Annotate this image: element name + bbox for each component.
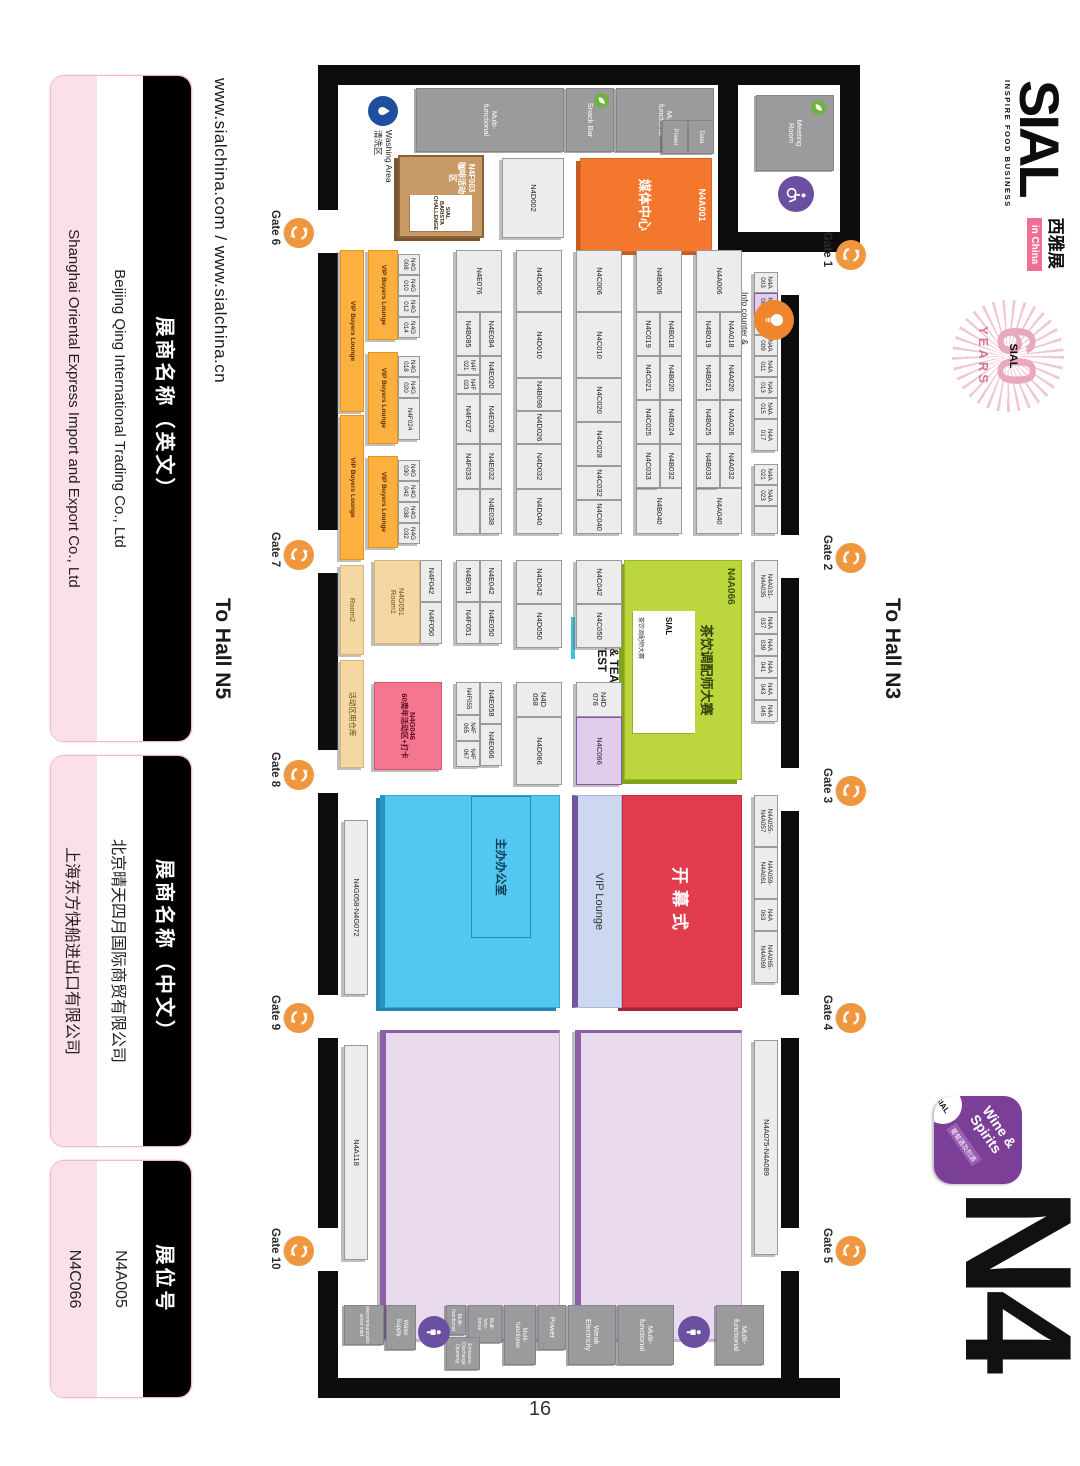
booth-N4A065--N4A069: N4A065- N4A069: [754, 931, 778, 983]
rotated-canvas: SIAL INSPIRE FOOD BUSINESS 西雅展 in China …: [0, 0, 1080, 1466]
coffee-activity-booth: N4F003咖啡活动区 SIAL BARISTA CHALLENGE: [398, 155, 484, 238]
booth-N4A-063: N4A 063: [754, 899, 778, 931]
exhibitor-card-chinese-row1: 北京晴天四月国际商贸有限公司: [97, 756, 143, 1146]
gate-icon-gate-1: [836, 240, 866, 270]
gate-icon-gate-2: [836, 543, 866, 573]
opening-ceremony-label: 开幕式: [670, 867, 695, 936]
booth-N4C021: N4C021: [636, 356, 660, 400]
gate-icon-gate-4: [836, 1003, 866, 1033]
booth-N4C033: N4C033: [636, 444, 660, 488]
booth-number-card-row2: N4C066: [51, 1161, 97, 1397]
booth-N4A-021: N4A 021: [754, 464, 778, 485]
booth-Multi--functional: Multi- functional: [416, 88, 564, 152]
booth-N4A-037: N4A 037: [754, 612, 778, 634]
booth-N4B020: N4B020: [660, 356, 682, 400]
booth-N4B032: N4B032: [660, 444, 682, 488]
wine-spirits-badge: Wine & Spirits 葡萄酒及烈酒 SIAL: [934, 1096, 1022, 1184]
booth-N4C019: N4C019: [636, 312, 660, 356]
gate-icon-gate-10: [284, 1236, 314, 1266]
booth-N4B019: N4B019: [696, 312, 720, 356]
booth-Multi--functional: Multi- functional: [618, 1305, 674, 1365]
booth-N4A-045: N4A 045: [754, 700, 778, 722]
booth-N4C028: N4C028: [576, 422, 622, 466]
booth-empty: [575, 1030, 742, 1340]
wall-segment: [840, 65, 860, 252]
sial-logo-chinese: 西雅展: [1046, 218, 1064, 271]
sixty-years-sial: SIAL: [1007, 343, 1019, 368]
gate-label-gate-9: Gate 9: [269, 995, 281, 1030]
booth-N4G058-N4G072: N4G058-N4G072: [344, 820, 368, 995]
media-center-booth: N4A001 媒体中心: [580, 158, 712, 252]
booth-Water-Supply: Water Supply: [386, 1305, 416, 1350]
booth-N4F051: N4F051: [456, 602, 480, 644]
gate-label-gate-4: Gate 4: [821, 995, 833, 1030]
coffee-activity-label: 咖啡活动区: [448, 162, 467, 194]
tea-contest-chip-brand: SIAL: [664, 617, 673, 727]
booth-N4E058: N4E058: [480, 682, 502, 724]
booth-N4G-018: N4G 018: [398, 356, 420, 377]
exhibitor-card-english: 展商名称（英文） Beijing Qing International Trad…: [50, 75, 192, 742]
media-center-id: N4A001: [697, 159, 707, 251]
booth-N4A018: N4A018: [720, 312, 742, 356]
wall-segment: [318, 573, 338, 750]
booth-N4D026: N4D026: [516, 411, 562, 444]
booth-N4C006: N4C006: [576, 250, 622, 312]
booth-N4B021: N4B021: [696, 356, 720, 400]
tea-contest-area: N4A066 茶饮调配师大赛 SIAL 茶饮调配师大赛 CHIC & TEA C…: [624, 560, 742, 780]
booth-N4F-023: N4F 023: [456, 375, 480, 394]
booth-N4C032: N4C032: [576, 466, 622, 500]
page-number: 16: [0, 1398, 1080, 1421]
booth-N4F-067: N4F 067: [456, 741, 480, 767]
exhibitor-card-chinese: 展商名称（中文） 北京晴天四月国际商贸有限公司 上海东方快船进出口有限公司: [50, 755, 192, 1147]
gate-label-gate-10: Gate 10: [269, 1228, 281, 1270]
booth-N4D040: N4D040: [516, 489, 562, 534]
booth-N4A-043: N4A 043: [754, 678, 778, 700]
tea-contest-id: N4A066: [725, 568, 736, 605]
booth-Data: Data: [688, 120, 714, 154]
gate-icon-gate-6: [284, 218, 314, 248]
booth-N4G046-60周年活动区+打卡: N4G046 60周年活动区+打卡: [374, 682, 442, 770]
booth-N4B025: N4B025: [696, 400, 720, 444]
booth-N4E066: N4E066: [480, 724, 502, 766]
booth-N4A040: N4A040: [696, 488, 742, 534]
booth-N4D032: N4D032: [516, 444, 562, 489]
gate-label-gate-6: Gate 6: [269, 210, 281, 245]
booth-N4G-010: N4G 010: [398, 275, 420, 296]
exhibitor-card-english-row2: Shanghai Oriental Express Import and Exp…: [51, 76, 97, 741]
sial-logo: SIAL INSPIRE FOOD BUSINESS 西雅展 in China: [1003, 80, 1064, 271]
wall-segment: [718, 85, 738, 252]
gate-icon-gate-5: [836, 1236, 866, 1266]
booth-N4A-013: N4A 013: [754, 377, 778, 398]
to-hall-n3-label: To Hall N3: [880, 598, 904, 699]
wall-segment: [318, 65, 860, 85]
booth-N4C025: N4C025: [636, 400, 660, 444]
vip-lounge-strip: VIP Lounge: [572, 795, 622, 1008]
booth-N4E084: N4E084: [480, 312, 502, 356]
booth-N4A118: N4A118: [344, 1045, 368, 1260]
booth-活动区用仓库: 活动区用仓库: [340, 660, 364, 768]
restroom-icon-2: [418, 1316, 450, 1348]
booth-number-card-row1: N4A005: [97, 1161, 143, 1397]
booth-N4F033: N4F033: [456, 444, 480, 489]
sixty-years-label: YEARS: [976, 326, 991, 386]
booth-N4E076: N4E076: [456, 250, 502, 312]
booth-N4A-011: N4A 011: [754, 356, 778, 377]
booth-N4G051-Room1: N4G051 Room1: [374, 560, 420, 644]
booth-N4B085: N4B085: [456, 312, 480, 356]
booth-N4D-058: N4D 058: [516, 682, 562, 717]
booth-N4C040: N4C040: [576, 500, 622, 534]
sial-logo-word: SIAL: [1014, 80, 1064, 208]
booth-N4F-065: N4F 065: [456, 715, 480, 741]
booth-N4A059--N4A061: N4A059- N4A061: [754, 847, 778, 899]
exhibitor-card-english-header: 展商名称（英文）: [143, 76, 191, 741]
booth-N4E038: N4E038: [480, 489, 502, 534]
booth-number-card: 展位号 N4A005 N4C066: [50, 1160, 192, 1398]
booth-VIP-Buyers-Lounge: VIP Buyers Lounge: [340, 415, 364, 560]
washing-area-label: Washing Area 清洗区: [372, 130, 394, 183]
booth-N4C050: N4C050: [576, 604, 622, 648]
booth-N4D042: N4D042: [516, 560, 562, 604]
wall-segment: [318, 1271, 338, 1398]
booth-N4A006: N4A006: [696, 250, 742, 312]
booth-N4F024: N4F024: [398, 398, 420, 440]
booth-N4A026: N4A026: [720, 400, 742, 444]
booth-N4B018: N4B018: [660, 312, 682, 356]
gate-label-gate-5: Gate 5: [821, 1228, 833, 1263]
booth-N4G-012: N4G 012: [398, 296, 420, 317]
booth-Room2: Room2: [340, 565, 364, 655]
tea-contest-chip-underline: [571, 617, 575, 659]
wall-segment: [781, 811, 799, 995]
wall-segment: [318, 1378, 840, 1398]
gate-icon-gate-7: [284, 540, 314, 570]
booth-N4E032: N4E032: [480, 444, 502, 489]
booth-N4E020: N4E020: [480, 356, 502, 394]
booth-empty: [380, 1030, 560, 1340]
booth-VIP-Buyers-Lounge: VIP Buyers Lounge: [368, 250, 398, 340]
booth-Power: Power: [662, 120, 688, 154]
booth-VIP-Buyers-Lounge: VIP Buyers Lounge: [368, 456, 398, 548]
booth-N4C020: N4C020: [576, 378, 622, 422]
booth-empty: [456, 489, 480, 534]
booth-N4F042: N4F042: [420, 560, 442, 602]
opening-ceremony-area: 开幕式: [622, 795, 742, 1008]
wall-segment: [781, 578, 799, 768]
booth-Emission-Discharge-Opening: Emission Discharge Opening: [446, 1337, 480, 1370]
wall-segment: [318, 1038, 338, 1228]
booth-N4D050: N4D050: [516, 604, 562, 648]
booth-N4G-008: N4G 008: [398, 254, 420, 275]
gate-icon-gate-9: [284, 1003, 314, 1033]
booth-Power: Power: [538, 1305, 566, 1350]
booth-N4B024: N4B024: [660, 400, 682, 444]
booth-N4G-042: N4G 042: [398, 481, 420, 502]
booth-N4A031--N4A035: N4A031- N4A035: [754, 560, 778, 612]
wall-segment: [318, 793, 338, 995]
media-center-label: 媒体中心: [637, 179, 656, 231]
booth-N4C066: N4C066: [576, 717, 622, 785]
booth-N4A-003: N4A 003: [754, 272, 778, 293]
booth-VIP-Buyers-Lounge: VIP Buyers Lounge: [368, 352, 398, 444]
booth-N4B006: N4B006: [636, 250, 682, 312]
meeting-room-eco-icon: [811, 100, 826, 115]
gate-icon-gate-3: [836, 776, 866, 806]
snack-bar-eco-icon: [594, 93, 609, 108]
booth-Telecommunication-wires-inlet: Telecommunication wires inlet: [344, 1305, 384, 1345]
sial-logo-tagline: INSPIRE FOOD BUSINESS: [1003, 80, 1012, 208]
gate-label-gate-1: Gate 1: [821, 232, 833, 267]
wine-badge-sial: SIAL: [934, 1096, 952, 1115]
tea-contest-chip-sub: 茶饮调配师大赛: [637, 617, 646, 727]
organizer-office-area: 主办办公室: [380, 795, 560, 1008]
booth-N4G-014: N4G 014: [398, 317, 420, 338]
booth-N4C010: N4C010: [576, 312, 622, 378]
restroom-icon-1: [678, 1316, 710, 1348]
exhibitor-card-chinese-row2: 上海东方快船进出口有限公司: [51, 756, 97, 1146]
washing-area-icon: [368, 96, 398, 126]
in-china-badge: in China: [1027, 218, 1042, 271]
booth-N4G-032: N4G 032: [398, 523, 420, 544]
barista-challenge-chip: SIAL BARISTA CHALLENGE: [410, 195, 472, 231]
coffee-activity-id: N4F003咖啡活动区: [447, 161, 476, 195]
wheelchair-icon: [778, 176, 814, 212]
booth-N4D006: N4D006: [516, 250, 562, 312]
booth-N4B040: N4B040: [636, 488, 682, 534]
info-counter-icon: [754, 300, 794, 340]
booth-N4D-076: N4D 076: [576, 682, 622, 717]
hall-code-title: N4: [942, 1188, 1080, 1366]
tea-contest-chip: SIAL 茶饮调配师大赛 CHIC & TEA CONTEST: [633, 611, 695, 733]
tea-contest-label: 茶饮调配师大赛: [698, 561, 717, 779]
booth-N4D066: N4D066: [516, 717, 562, 785]
to-hall-n5-label: To Hall N5: [210, 598, 234, 699]
booth-N4D010: N4D010: [516, 312, 562, 378]
booth-N4A-039: N4A 039: [754, 634, 778, 656]
booth-N4A032: N4A032: [720, 444, 742, 488]
booth-Multi--functional: Multi- functional: [504, 1305, 536, 1365]
booth-N4B091: N4B091: [456, 560, 480, 602]
booth-N4E026: N4E026: [480, 394, 502, 444]
website-urls: www.sialchina.com / www.sialchina.cn: [210, 78, 230, 383]
booth-N4A-015: N4A 015: [754, 398, 778, 419]
booth-N4A020: N4A020: [720, 356, 742, 400]
gate-icon-gate-8: [284, 760, 314, 790]
booth-N4D002: N4D002: [502, 158, 564, 238]
booth-N4E042: N4E042: [480, 560, 502, 602]
booth-N4B098: N4B098: [516, 378, 562, 411]
booth-N4F-021: N4F 021: [456, 356, 480, 375]
gate-label-gate-7: Gate 7: [269, 532, 281, 567]
sixty-years-badge: 60 YEARS SIAL: [952, 300, 1064, 412]
booth-VIP-Buyers-Lounge: VIP Buyers Lounge: [340, 250, 364, 412]
gate-label-gate-8: Gate 8: [269, 752, 281, 787]
booth-N4A055--N4A057: N4A055- N4A057: [754, 795, 778, 847]
gate-label-gate-2: Gate 2: [821, 535, 833, 570]
booth-N4A075-N4A089: N4A075-N4A089: [754, 1040, 778, 1255]
vip-lounge-label: VIP Lounge: [594, 873, 606, 930]
booth-N4F055: N4F055: [456, 682, 480, 715]
booth-N4G-020: N4G 020: [398, 377, 420, 398]
organizer-office-label: 主办办公室: [493, 838, 509, 896]
wall-segment: [318, 253, 338, 530]
booth-empty: [754, 506, 778, 534]
booth-Weak-Electricity: Weak Electricity: [568, 1305, 616, 1365]
booth-number-card-header: 展位号: [143, 1161, 191, 1397]
booth-N4G-038: N4G 038: [398, 502, 420, 523]
booth-N4A-023: N4A 023: [754, 485, 778, 506]
booth-N4F027: N4F027: [456, 394, 480, 444]
booth-N4B033: N4B033: [696, 444, 720, 488]
booth-N4F050: N4F050: [420, 602, 442, 644]
page: { "page": {"number": "16"}, "branding": …: [0, 0, 1080, 1466]
exhibitor-card-english-row1: Beijing Qing International Trading Co., …: [97, 76, 143, 741]
gate-label-gate-3: Gate 3: [821, 768, 833, 803]
booth-Multi--functional: Multi- functional: [716, 1305, 764, 1365]
wall-segment: [318, 85, 338, 210]
wall-segment: [781, 1038, 799, 1228]
booth-N4C042: N4C042: [576, 560, 622, 604]
booth-N4E050: N4E050: [480, 602, 502, 644]
booth-N4A-041: N4A 041: [754, 656, 778, 678]
booth-N4G-030: N4G 030: [398, 460, 420, 481]
exhibitor-card-chinese-header: 展商名称（中文）: [143, 756, 191, 1146]
booth-N4A-017: N4A 017: [754, 419, 778, 451]
